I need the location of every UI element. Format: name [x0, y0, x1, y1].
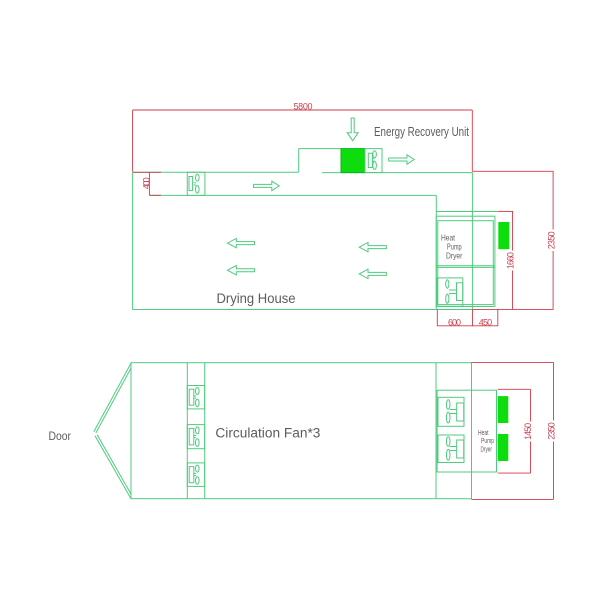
svg-text:Pump: Pump: [447, 242, 462, 251]
svg-text:Dryer: Dryer: [446, 251, 463, 260]
svg-text:5800: 5800: [294, 101, 313, 111]
svg-text:1450: 1450: [523, 423, 533, 440]
svg-text:Energy Recovery Unit: Energy Recovery Unit: [374, 125, 469, 139]
svg-text:450: 450: [479, 318, 492, 328]
svg-text:Circulation Fan*3: Circulation Fan*3: [215, 426, 320, 441]
svg-text:600: 600: [448, 318, 461, 328]
svg-text:2350: 2350: [546, 422, 556, 440]
svg-text:1660: 1660: [506, 252, 516, 269]
svg-text:400: 400: [141, 177, 151, 189]
svg-text:Drying House: Drying House: [217, 290, 296, 306]
svg-text:Door: Door: [49, 429, 72, 443]
svg-text:2350: 2350: [546, 231, 556, 249]
svg-text:Heat: Heat: [441, 233, 456, 242]
svg-text:Dryer: Dryer: [481, 445, 493, 454]
